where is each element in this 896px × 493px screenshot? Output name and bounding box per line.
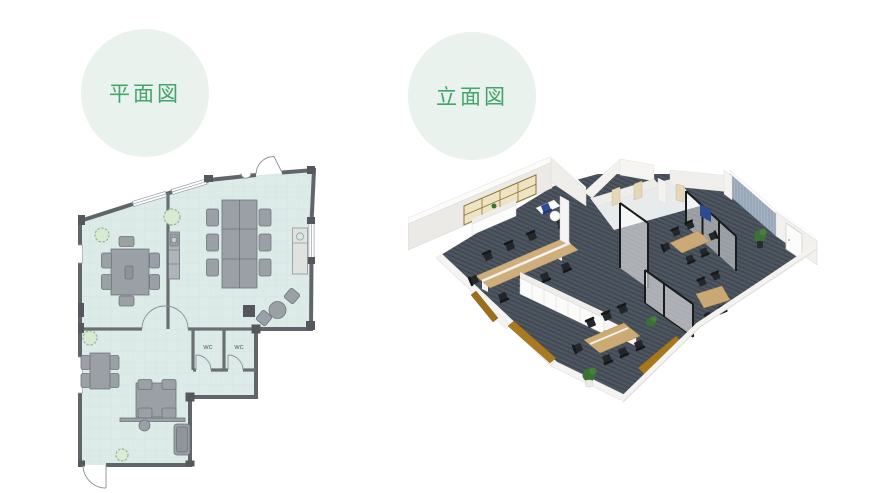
kitchenette-counter	[293, 228, 308, 274]
hall-door-2	[634, 181, 642, 200]
elevation-badge: 立面図	[408, 32, 536, 160]
credenza-plant	[492, 204, 497, 209]
right-room-door	[676, 184, 684, 202]
wc-label-1: WC	[203, 345, 212, 351]
hall-door-1	[612, 187, 620, 206]
wc-label-2: WC	[234, 345, 243, 351]
elevation-badge-label: 立面図	[436, 81, 508, 111]
copier-cabinet	[169, 232, 180, 279]
page: 平面図 立面図	[0, 0, 896, 493]
office-pillar	[560, 196, 569, 245]
conference-table-area	[207, 200, 272, 288]
floor-plan-figure: WC WC	[78, 153, 324, 491]
plan-badge-label: 平面図	[109, 78, 181, 108]
plan-badge: 平面図	[81, 29, 209, 157]
elevation-figure	[408, 148, 888, 468]
